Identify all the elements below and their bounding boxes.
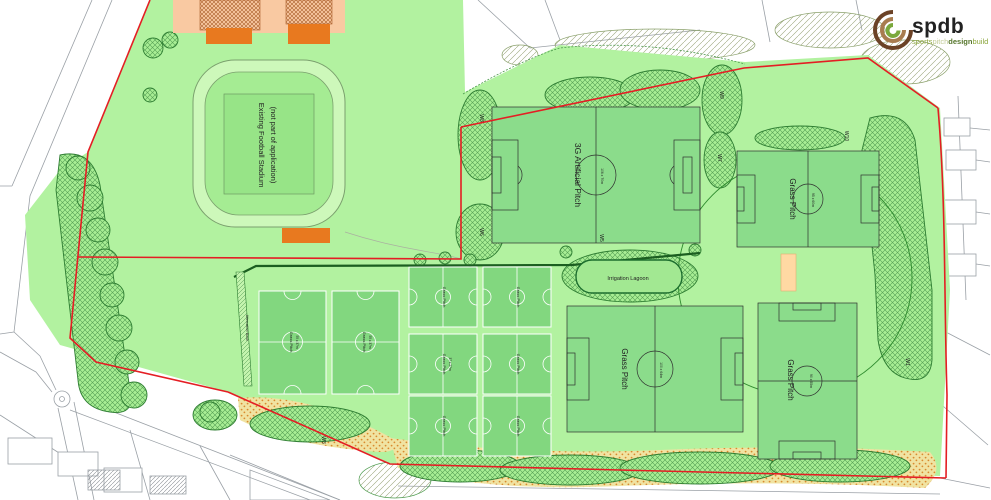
house-outline bbox=[8, 438, 52, 464]
pitch-grass-south-dim: 100 x 64m bbox=[659, 362, 663, 378]
parcel-line bbox=[545, 0, 560, 40]
planting-north bbox=[620, 70, 700, 110]
zone-w7: W7 bbox=[716, 154, 722, 162]
pitch-grass-se bbox=[758, 303, 857, 459]
parcel-line bbox=[762, 0, 770, 42]
pitch-3g-dim: 106 x 70m bbox=[600, 168, 604, 184]
tree bbox=[106, 315, 132, 341]
tree bbox=[162, 32, 178, 48]
zone-w10: W10 bbox=[843, 131, 849, 142]
road-edge bbox=[398, 486, 940, 494]
mini-roundabout bbox=[54, 391, 70, 407]
tree bbox=[100, 283, 124, 307]
tree bbox=[414, 254, 426, 266]
planting-w10 bbox=[755, 126, 845, 150]
pitch-mini-3-label: Grass Pitch bbox=[442, 354, 447, 375]
tree bbox=[143, 88, 157, 102]
pitch-grass-south-label: Grass Pitch bbox=[620, 348, 629, 389]
pitch-grass-se-dim: 90 x 55m bbox=[809, 374, 813, 388]
site-plan-page: Existing Football Stadium (not part of a… bbox=[0, 0, 991, 500]
stadium-pitch bbox=[224, 94, 314, 194]
pitch-medium-2-label: Grass Pitch bbox=[362, 332, 367, 353]
road-junction bbox=[0, 332, 56, 392]
pitch-grass-south bbox=[567, 306, 743, 432]
planting-south bbox=[620, 452, 780, 484]
pitch-3g-label: 3G Artificial Pitch bbox=[573, 143, 583, 208]
logo-tag-build: build bbox=[972, 37, 988, 46]
logo-tagline: sportspitchdesignbuild bbox=[912, 37, 988, 46]
tree bbox=[560, 246, 572, 258]
house-outline bbox=[946, 254, 976, 276]
pitch-grass-ne-label: Grass Pitch bbox=[788, 178, 797, 219]
existing-building bbox=[200, 0, 260, 30]
pitch-3g-artificial bbox=[492, 107, 700, 243]
parcel-line bbox=[250, 470, 330, 500]
stadium-label-line1: Existing Football Stadium bbox=[257, 103, 266, 188]
pitch-mini-4-label: Grass Pitch bbox=[516, 354, 521, 375]
irrigation-lagoon-label: Irrigation Lagoon bbox=[607, 276, 648, 282]
tree bbox=[77, 185, 103, 211]
pitch-medium-2-dim: 55 x 37m bbox=[368, 335, 372, 348]
tree bbox=[86, 218, 110, 242]
tree bbox=[464, 254, 476, 266]
zone-w8: W8 bbox=[478, 114, 484, 122]
zone-w9: W9 bbox=[718, 91, 724, 99]
pavilion-building bbox=[781, 254, 796, 291]
pitch-grass-ne bbox=[737, 151, 879, 247]
pitch-grass-se-label: Grass Pitch bbox=[786, 359, 795, 400]
pitch-mini-3-dim: 37 x 27m bbox=[448, 357, 452, 370]
pitch-mini-1-label: Grass Pitch bbox=[442, 287, 447, 308]
tree bbox=[121, 382, 147, 408]
existing-building bbox=[286, 0, 332, 24]
tree bbox=[200, 402, 220, 422]
logo-swirl-inner bbox=[888, 25, 899, 36]
scrub-patch bbox=[775, 12, 885, 48]
existing-building-orange bbox=[206, 28, 252, 44]
tree bbox=[439, 252, 451, 264]
pitch-mini-6-label: Grass Pitch bbox=[516, 416, 521, 437]
tree bbox=[143, 38, 163, 58]
hatched-roof bbox=[88, 470, 120, 490]
house-outline bbox=[944, 118, 970, 136]
attenuation-label: Attenuation Basin bbox=[245, 315, 249, 342]
pitch-mini-2-label: Grass Pitch bbox=[516, 287, 521, 308]
spdb-logo: spdb sportspitchdesignbuild bbox=[875, 12, 988, 48]
zone-w1: W1 bbox=[904, 358, 910, 366]
logo-tag-pitch: pitch bbox=[932, 37, 948, 46]
parcel-line bbox=[970, 128, 990, 266]
masterplan-drawing: Existing Football Stadium (not part of a… bbox=[0, 0, 991, 500]
logo-tag-design: design bbox=[948, 37, 973, 46]
pitch-grass-ne-dim: 95 x 60m bbox=[811, 193, 815, 207]
house-outline bbox=[946, 150, 976, 170]
zone-w5: W5 bbox=[598, 234, 604, 242]
stadium-label-line2: (not part of application) bbox=[269, 107, 278, 184]
logo-tag-sports: sports bbox=[912, 37, 933, 46]
hatched-roof bbox=[150, 476, 186, 494]
existing-building-orange bbox=[288, 24, 330, 44]
pitch-mini-5-label: Grass Pitch bbox=[442, 416, 447, 437]
existing-building-orange bbox=[282, 228, 330, 243]
mini-roundabout-center bbox=[60, 397, 65, 402]
logo-brand-text: spdb bbox=[912, 15, 964, 38]
zone-w6: W6 bbox=[478, 228, 484, 236]
planting-w3 bbox=[250, 406, 370, 442]
tree bbox=[92, 249, 118, 275]
zone-w3: W3 bbox=[320, 436, 326, 444]
pitch-medium-1-label: Grass Pitch bbox=[289, 332, 294, 353]
house-outline bbox=[942, 200, 976, 224]
pitch-medium-1-dim: 55 x 37m bbox=[295, 335, 299, 348]
